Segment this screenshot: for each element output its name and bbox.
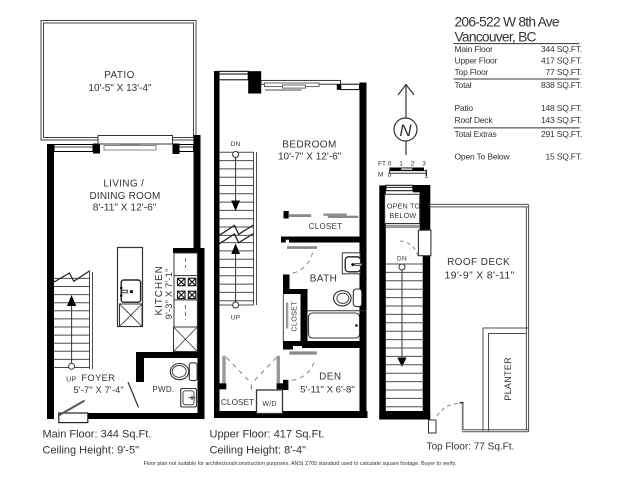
svg-text:5'-11" X 6'-8": 5'-11" X 6'-8"	[300, 385, 355, 396]
svg-text:Upper Floor: Upper Floor	[455, 56, 498, 66]
svg-text:Total: Total	[455, 80, 472, 90]
svg-text:Upper Floor: 417 Sq.Ft.: Upper Floor: 417 Sq.Ft.	[210, 429, 325, 441]
svg-text:2: 2	[411, 161, 415, 168]
svg-text:CLOSET: CLOSET	[309, 222, 343, 231]
svg-text:BELOW: BELOW	[389, 211, 416, 220]
svg-text:DN: DN	[231, 141, 241, 148]
svg-text:LIVING /: LIVING /	[103, 179, 144, 190]
svg-text:Ceiling Height: 9'-5": Ceiling Height: 9'-5"	[43, 445, 140, 457]
svg-text:9'-3" X 7'-1": 9'-3" X 7'-1"	[164, 268, 174, 319]
svg-text:1: 1	[425, 173, 429, 180]
svg-text:148 SQ.FT.: 148 SQ.FT.	[541, 103, 582, 113]
svg-text:19'-9" X 8'-11": 19'-9" X 8'-11"	[444, 270, 514, 282]
svg-text:Floor plan not suitable for ar: Floor plan not suitable for architectura…	[144, 461, 457, 467]
svg-text:1: 1	[399, 161, 403, 168]
svg-text:ROOF DECK: ROOF DECK	[447, 257, 510, 268]
svg-text:BEDROOM: BEDROOM	[282, 140, 336, 151]
svg-text:UP: UP	[231, 315, 241, 322]
svg-text:UP: UP	[66, 377, 76, 384]
svg-text:DINING ROOM: DINING ROOM	[89, 191, 160, 202]
svg-text:DN: DN	[397, 256, 407, 263]
svg-text:Patio: Patio	[455, 103, 474, 113]
svg-text:206-522 W 8th Ave: 206-522 W 8th Ave	[455, 14, 560, 29]
svg-text:PATIO: PATIO	[104, 70, 135, 81]
svg-text:Main Floor: 344 Sq.Ft.: Main Floor: 344 Sq.Ft.	[43, 429, 152, 441]
svg-text:N: N	[399, 121, 412, 140]
svg-text:143 SQ.FT.: 143 SQ.FT.	[541, 115, 582, 125]
svg-text:10'-5" X 13'-4": 10'-5" X 13'-4"	[88, 83, 152, 94]
svg-text:3: 3	[422, 161, 426, 168]
svg-text:Roof Deck: Roof Deck	[455, 115, 494, 125]
svg-text:Open To Below: Open To Below	[455, 152, 511, 162]
svg-text:Main Floor: Main Floor	[455, 44, 494, 54]
svg-text:CLOSET: CLOSET	[221, 398, 254, 407]
svg-text:FT: FT	[378, 161, 386, 168]
svg-text:0: 0	[388, 172, 392, 179]
svg-text:Top Floor: Top Floor	[455, 67, 489, 77]
svg-text:5'-7" X 7'-4": 5'-7" X 7'-4"	[73, 385, 123, 395]
svg-text:8'-11" X 12'-6": 8'-11" X 12'-6"	[93, 203, 157, 214]
svg-text:Vancouver, BC: Vancouver, BC	[455, 29, 537, 44]
svg-text:417 SQ.FT.: 417 SQ.FT.	[541, 56, 582, 66]
svg-text:W/D: W/D	[262, 401, 276, 408]
svg-text:PLANTER: PLANTER	[503, 357, 513, 401]
svg-text:838 SQ.FT.: 838 SQ.FT.	[541, 80, 582, 90]
svg-text:OPEN TO: OPEN TO	[387, 202, 421, 211]
svg-text:CLOSET: CLOSET	[290, 301, 299, 332]
svg-text:77 SQ.FT.: 77 SQ.FT.	[546, 67, 582, 77]
svg-text:344 SQ.FT.: 344 SQ.FT.	[541, 44, 582, 54]
svg-text:10'-7" X 12'-6": 10'-7" X 12'-6"	[278, 152, 342, 163]
svg-text:Ceiling Height: 8'-4": Ceiling Height: 8'-4"	[210, 445, 307, 457]
svg-text:DEN: DEN	[319, 372, 341, 383]
svg-text:BATH: BATH	[310, 274, 338, 285]
svg-text:PWD.: PWD.	[152, 385, 174, 394]
svg-text:Total Extras: Total Extras	[455, 129, 497, 139]
svg-text:15 SQ.FT.: 15 SQ.FT.	[546, 152, 582, 162]
svg-text:FOYER: FOYER	[81, 372, 115, 383]
svg-text:M: M	[378, 172, 383, 179]
svg-text:0: 0	[388, 161, 392, 168]
svg-text:Top Floor: 77 Sq.Ft.: Top Floor: 77 Sq.Ft.	[427, 442, 515, 453]
svg-text:291 SQ.FT.: 291 SQ.FT.	[541, 129, 582, 139]
